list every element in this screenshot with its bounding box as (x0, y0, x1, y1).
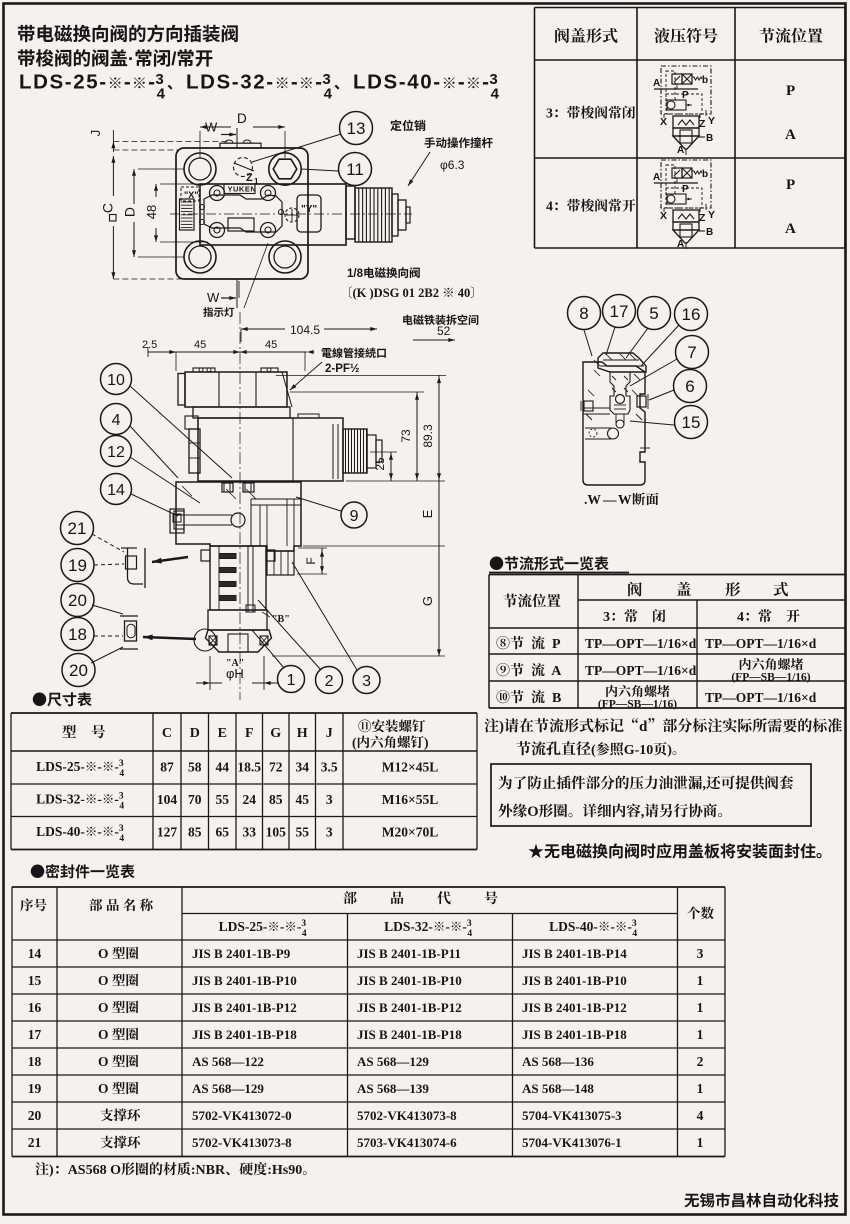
svg-text:2.5: 2.5 (142, 339, 157, 351)
svg-text:b: b (702, 169, 708, 180)
svg-text:,: , (702, 776, 706, 792)
svg-text:(FP—SB—1/16): (FP—SB—1/16) (598, 699, 677, 711)
svg-text:JIS B 2401-1B-P9: JIS B 2401-1B-P9 (192, 946, 291, 961)
svg-text:(K )DSG 01 2B2: (K )DSG 01 2B2 (353, 286, 443, 300)
svg-text:17: 17 (610, 302, 629, 321)
svg-text:D: D (122, 207, 138, 217)
svg-text:1: 1 (697, 1000, 704, 1015)
svg-text:(FP—SB—1/16): (FP—SB—1/16) (731, 672, 810, 684)
svg-text:4: 4 (112, 412, 121, 429)
svg-text:TP—OPT—1/16×d: TP—OPT—1/16×d (585, 636, 697, 651)
svg-text:A: A (545, 664, 562, 679)
svg-text:b: b (702, 75, 708, 86)
svg-text:4: 4 (632, 929, 637, 939)
svg-text:3: 3 (467, 919, 472, 929)
svg-text:3: 3 (632, 919, 637, 929)
svg-text:10: 10 (107, 372, 125, 389)
svg-text:LDS-32-: LDS-32- (36, 792, 85, 807)
svg-text:11: 11 (346, 160, 364, 179)
svg-text:"A": "A" (226, 658, 244, 669)
svg-text:3: 3 (119, 792, 124, 802)
svg-text:1: 1 (697, 973, 704, 988)
svg-text:-: - (97, 824, 102, 839)
svg-text:): ) (424, 735, 429, 750)
svg-text:O: O (98, 1054, 112, 1069)
svg-text::NBR: :NBR (191, 1163, 226, 1178)
svg-text:3: 3 (697, 946, 704, 961)
svg-text:5702-VK413073-8: 5702-VK413073-8 (192, 1135, 292, 1150)
svg-text:JIS B 2401-1B-P14: JIS B 2401-1B-P14 (522, 946, 627, 961)
svg-text:5702-VK413073-8: 5702-VK413073-8 (357, 1108, 457, 1123)
svg-text:½: ½ (350, 363, 360, 375)
svg-text:20: 20 (28, 1108, 42, 1123)
svg-text:45: 45 (296, 792, 310, 807)
svg-text:O: O (98, 1000, 112, 1015)
svg-text:3: 3 (603, 610, 610, 625)
svg-text:TP—OPT—1/16×d: TP—OPT—1/16×d (585, 663, 697, 678)
svg-text:F: F (304, 557, 318, 564)
svg-text:72: 72 (269, 760, 283, 775)
svg-text:4: 4 (324, 86, 333, 103)
svg-text:G: G (270, 726, 281, 741)
svg-text:.W: .W (584, 492, 601, 507)
svg-text:5704-VK413076-1: 5704-VK413076-1 (522, 1135, 622, 1150)
svg-text:AS 568—139: AS 568—139 (357, 1081, 429, 1096)
svg-text:—: — (602, 492, 617, 507)
svg-text:3: 3 (119, 824, 124, 834)
svg-text:20: 20 (69, 661, 88, 680)
svg-text:44: 44 (216, 760, 230, 775)
svg-text:5: 5 (649, 304, 658, 323)
svg-text:4: 4 (119, 802, 124, 812)
svg-text:Y: Y (708, 209, 715, 221)
svg-text:J: J (326, 726, 333, 741)
svg-text:D: D (237, 111, 247, 126)
svg-text:33: 33 (243, 825, 257, 840)
svg-text:1: 1 (254, 177, 259, 186)
svg-text:4: 4 (119, 834, 124, 844)
svg-text:2: 2 (325, 673, 334, 690)
svg-text:AS 568—148: AS 568—148 (522, 1081, 594, 1096)
svg-text:-: - (124, 71, 131, 94)
svg-text:AS 568—129: AS 568—129 (357, 1054, 429, 1069)
svg-text:104.5: 104.5 (290, 323, 320, 337)
svg-text:58: 58 (188, 760, 202, 775)
svg-text:,: , (641, 804, 645, 820)
svg-text:O: O (527, 804, 538, 820)
svg-text::Hs90: :Hs90 (267, 1163, 302, 1178)
svg-text:AS 568—136: AS 568—136 (522, 1054, 594, 1069)
svg-text:104: 104 (157, 792, 178, 807)
svg-text:21: 21 (28, 1135, 42, 1150)
svg-text:-: - (97, 792, 102, 807)
svg-text:O: O (98, 1081, 112, 1096)
svg-text:Z: Z (699, 212, 706, 224)
svg-text:55: 55 (216, 792, 230, 807)
svg-text:W: W (618, 492, 632, 507)
svg-text:AS568 O: AS568 O (68, 1163, 121, 1178)
svg-text:LDS-32-: LDS-32- (384, 919, 433, 934)
svg-text:JIS B 2401-1B-P10: JIS B 2401-1B-P10 (522, 973, 627, 988)
svg-text:3: 3 (119, 759, 124, 769)
svg-text:M20×70L: M20×70L (382, 825, 438, 840)
svg-text:3: 3 (326, 825, 333, 840)
svg-text:15: 15 (28, 973, 42, 988)
svg-text:-: - (445, 919, 450, 934)
svg-text:LDS-40-: LDS-40- (549, 919, 598, 934)
svg-text:JIS B 2401-1B-P12: JIS B 2401-1B-P12 (357, 1000, 462, 1015)
svg-text:G: G (420, 596, 435, 606)
svg-text:55: 55 (296, 825, 310, 840)
svg-text:JIS B 2401-1B-P10: JIS B 2401-1B-P10 (192, 973, 297, 988)
svg-text:E: E (218, 726, 227, 741)
svg-text:Z: Z (246, 172, 253, 184)
svg-text:2: 2 (697, 1054, 704, 1069)
svg-text:-: - (97, 759, 102, 774)
svg-text:3: 3 (301, 919, 306, 929)
svg-text:(: ( (591, 743, 596, 758)
svg-text:E: E (420, 509, 435, 518)
svg-text:73: 73 (399, 429, 413, 443)
svg-text:A: A (677, 239, 684, 250)
svg-text:-: - (280, 919, 285, 934)
svg-text:P: P (682, 90, 689, 101)
svg-text:3: 3 (546, 106, 553, 121)
svg-text:1: 1 (287, 672, 296, 689)
svg-text:4: 4 (302, 929, 307, 939)
svg-text:16: 16 (682, 305, 701, 324)
svg-text:O: O (98, 946, 112, 961)
svg-text:AS 568—129: AS 568—129 (192, 1081, 264, 1096)
svg-text:105: 105 (266, 825, 287, 840)
svg-text:5702-VK413072-0: 5702-VK413072-0 (192, 1108, 292, 1123)
svg-text:8: 8 (579, 304, 588, 323)
svg-text:127: 127 (157, 825, 178, 840)
svg-text:B: B (706, 133, 713, 144)
svg-text:25: 25 (373, 457, 387, 471)
svg-text:-: - (148, 71, 155, 94)
svg-text:-: - (610, 919, 615, 934)
svg-text:F: F (245, 726, 254, 741)
svg-text:"Y": "Y" (301, 204, 317, 215)
svg-text:20: 20 (68, 591, 87, 610)
svg-text:JIS B 2401-1B-P18: JIS B 2401-1B-P18 (522, 1027, 627, 1042)
svg-text:B: B (545, 691, 561, 706)
svg-text:): ) (667, 743, 672, 758)
svg-text:Z: Z (699, 118, 706, 130)
svg-text:P: P (545, 637, 561, 652)
svg-text:7: 7 (687, 343, 696, 362)
svg-text:C: C (162, 726, 172, 741)
svg-text:O: O (98, 1027, 112, 1042)
svg-text:"B": "B" (272, 614, 290, 625)
svg-text:3: 3 (362, 673, 371, 690)
svg-text:JIS B 2401-1B-P12: JIS B 2401-1B-P12 (192, 1000, 297, 1015)
svg-text:G-10: G-10 (624, 743, 654, 758)
svg-text:85: 85 (188, 825, 202, 840)
svg-text:45: 45 (265, 339, 277, 351)
svg-text:13: 13 (347, 119, 366, 138)
svg-text:70: 70 (188, 792, 202, 807)
svg-text:24: 24 (243, 792, 257, 807)
svg-text:14: 14 (107, 482, 125, 499)
svg-text:15: 15 (682, 413, 701, 432)
svg-text:4: 4 (157, 86, 166, 103)
svg-text:/: / (171, 48, 176, 69)
svg-text:1: 1 (697, 1135, 704, 1150)
svg-text:M12×45L: M12×45L (382, 760, 438, 775)
svg-text:52: 52 (437, 324, 451, 338)
svg-text:C: C (100, 203, 116, 213)
svg-text:19: 19 (68, 556, 87, 575)
svg-text:40: 40 (455, 286, 471, 300)
svg-text:LDS-25-: LDS-25- (19, 71, 108, 94)
svg-text:X: X (660, 210, 667, 222)
svg-text:4: 4 (737, 610, 744, 625)
svg-text:17: 17 (28, 1027, 42, 1042)
svg-text:89.3: 89.3 (421, 424, 435, 448)
svg-text:Y: Y (708, 115, 715, 127)
svg-text:LDS-32-: LDS-32- (186, 71, 275, 94)
svg-text:5704-VK413075-3: 5704-VK413075-3 (522, 1108, 622, 1123)
svg-text:W: W (207, 290, 220, 305)
svg-text:34: 34 (296, 760, 310, 775)
svg-text:J: J (88, 130, 103, 137)
svg-text:P: P (682, 184, 689, 195)
svg-text:M16×55L: M16×55L (382, 792, 438, 807)
svg-text:φ6.3: φ6.3 (440, 158, 465, 172)
svg-text:4: 4 (467, 929, 472, 939)
svg-text:D: D (190, 726, 200, 741)
svg-text:B: B (706, 227, 713, 238)
svg-text:3.5: 3.5 (321, 760, 338, 775)
svg-text:AS 568—122: AS 568—122 (192, 1054, 264, 1069)
svg-text:A: A (653, 78, 660, 89)
svg-text:87: 87 (160, 760, 174, 775)
svg-text:W: W (205, 120, 218, 135)
svg-text:19: 19 (28, 1081, 42, 1096)
svg-text:16: 16 (28, 1000, 42, 1015)
svg-text:): ) (499, 719, 504, 735)
svg-text:LDS-25-: LDS-25- (36, 759, 85, 774)
svg-text:18.5: 18.5 (237, 760, 261, 775)
svg-text:4: 4 (546, 199, 553, 214)
svg-text:P: P (786, 177, 795, 193)
svg-text:-: - (291, 71, 298, 94)
svg-text:5703-VK413074-6: 5703-VK413074-6 (357, 1135, 457, 1150)
svg-text:12: 12 (107, 444, 125, 461)
svg-text:-: - (458, 71, 465, 94)
svg-text:(: ( (352, 735, 357, 750)
svg-text:4: 4 (697, 1108, 704, 1123)
svg-text:P: P (786, 83, 795, 99)
svg-text:A: A (653, 172, 660, 183)
svg-text:X: X (660, 116, 667, 128)
svg-text:6: 6 (685, 377, 694, 396)
svg-text:85: 85 (269, 792, 283, 807)
svg-text:1/8: 1/8 (347, 268, 364, 280)
svg-text:·: · (128, 48, 134, 69)
svg-text:18: 18 (28, 1054, 42, 1069)
svg-text:2-PF: 2-PF (325, 363, 350, 375)
svg-text:O: O (98, 973, 112, 988)
svg-text:4: 4 (491, 86, 500, 103)
svg-text:TP—OPT—1/16×d: TP—OPT—1/16×d (705, 690, 817, 705)
svg-text:3: 3 (326, 792, 333, 807)
svg-text:JIS B 2401-1B-P18: JIS B 2401-1B-P18 (357, 1027, 462, 1042)
svg-text:1: 1 (697, 1081, 704, 1096)
svg-text:TP—OPT—1/16×d: TP—OPT—1/16×d (705, 636, 817, 651)
svg-text:LDS-40-: LDS-40- (353, 71, 442, 94)
svg-text:JIS B 2401-1B-P11: JIS B 2401-1B-P11 (357, 946, 461, 961)
svg-text:LDS-40-: LDS-40- (36, 824, 85, 839)
svg-text:-: - (482, 71, 489, 94)
svg-text:9: 9 (350, 508, 359, 525)
svg-text:14: 14 (28, 946, 42, 961)
svg-text:-: - (315, 71, 322, 94)
svg-text:A: A (785, 127, 796, 143)
svg-text:H: H (297, 726, 308, 741)
svg-text:48: 48 (144, 205, 159, 219)
svg-text:JIS B 2401-1B-P10: JIS B 2401-1B-P10 (357, 973, 462, 988)
svg-text:LDS-25-: LDS-25- (219, 919, 268, 934)
svg-text:A: A (785, 221, 796, 237)
svg-text:1: 1 (697, 1027, 704, 1042)
svg-text:A: A (677, 145, 684, 156)
svg-text:YUKEN: YUKEN (228, 185, 257, 194)
svg-text:45: 45 (194, 339, 206, 351)
svg-text:4: 4 (119, 769, 124, 779)
svg-text:JIS B 2401-1B-P12: JIS B 2401-1B-P12 (522, 1000, 627, 1015)
svg-text:18: 18 (68, 625, 87, 644)
svg-text:65: 65 (216, 825, 230, 840)
svg-text:d: d (639, 719, 648, 735)
svg-text:): ) (49, 1163, 54, 1178)
svg-text:21: 21 (68, 519, 87, 538)
svg-text:JIS B 2401-1B-P18: JIS B 2401-1B-P18 (192, 1027, 297, 1042)
